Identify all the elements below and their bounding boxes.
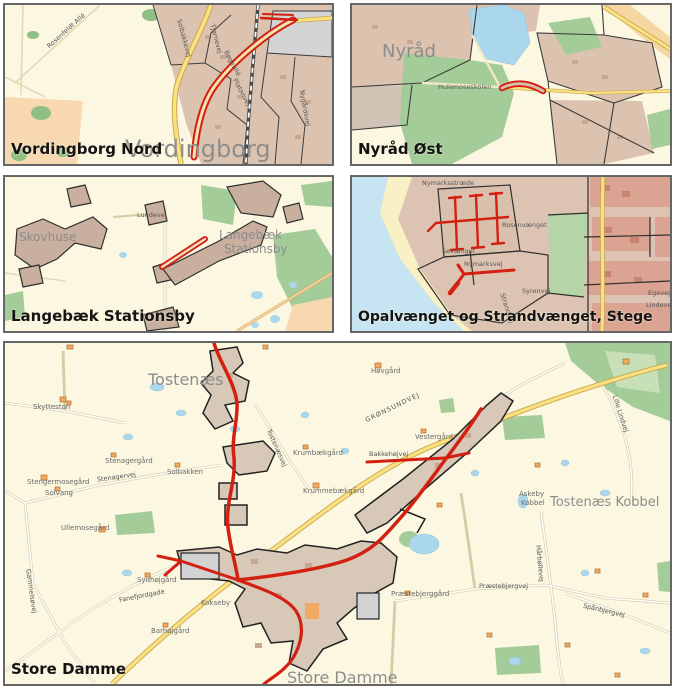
- street-label: Hulemoseskolen: [438, 83, 491, 91]
- street-label: Søvænget: [442, 247, 476, 255]
- panel-title-store-damme: Store Damme: [11, 660, 126, 678]
- place-label-store-damme: Store Damme: [287, 668, 398, 684]
- street-label: Lundevej: [137, 211, 167, 219]
- panel-title-stege: Opalvænget og Strandvænget, Stege: [358, 309, 653, 325]
- place-label: Ullemosegård: [61, 523, 109, 532]
- place-label-tostenaes: Tostenæs: [147, 370, 223, 389]
- place-label: Solbakken: [167, 468, 203, 476]
- place-label: Sydhøjgård: [137, 575, 177, 584]
- street-label: Syrenvej: [522, 287, 550, 295]
- place-label: Kobbel: [521, 499, 545, 507]
- map-stege: Nymarksstræde Søvænget Nymarksvej Rosenv…: [352, 177, 670, 331]
- panel-title-langebaek: Langebæk Stationsby: [11, 307, 195, 325]
- place-label: Askeby: [519, 490, 544, 498]
- place-label: Stenagergård: [105, 456, 153, 465]
- place-label: Stengermosegård: [27, 477, 89, 486]
- place-label: Barhøjgård: [151, 626, 189, 635]
- park: [548, 213, 588, 297]
- place-label-stationsby: Stationsby: [224, 242, 288, 256]
- place-label-tostenaes-kobbel: Tostenæs Kobbel: [549, 495, 659, 510]
- place-label: Krumbækgård: [293, 448, 343, 457]
- street-label: Lindevej: [646, 301, 670, 309]
- map-store-damme: Tostenæs Tostenæs Kobbel Store Damme Sky…: [5, 343, 670, 684]
- residential-area: [550, 100, 654, 164]
- main-roads: [602, 177, 603, 331]
- place-label-skovhuse: Skovhuse: [19, 230, 76, 244]
- road-label: Præstebjergvej: [479, 582, 528, 590]
- panel-nyraad-oest: Hulemoseskolen Nyråd Nyråd Øst: [350, 3, 672, 166]
- street-label: Egevej: [648, 289, 670, 297]
- place-label: Krummebækgård: [303, 486, 364, 495]
- place-label: Høvgård: [371, 366, 401, 375]
- panel-langebaek: Lundevej Skovhuse Langebæk Stationsby La…: [3, 175, 334, 333]
- panel-vordingborg-nord: Rosenfeldt Allé Solbakkevej Tjørnevej Bø…: [3, 3, 334, 166]
- place-label: Vestergård: [415, 432, 453, 441]
- gray-block: [357, 593, 379, 619]
- place-label: Præstebjerggård: [391, 589, 449, 598]
- map-report-canvas: Rosenfeldt Allé Solbakkevej Tjørnevej Bø…: [0, 0, 675, 690]
- street-label: Rosenvænget: [502, 221, 547, 229]
- city-label-nyraad: Nyråd: [382, 41, 436, 62]
- street-label: Nymarksstræde: [422, 179, 474, 187]
- place-label: Kokseby: [201, 599, 230, 607]
- panel-title-nyraad-oest: Nyråd Øst: [358, 140, 443, 158]
- road-label: Bakkehøjvej: [369, 450, 408, 458]
- street-label: Nymarksvej: [464, 260, 503, 268]
- panel-stege: Nymarksstræde Søvænget Nymarksvej Rosenv…: [350, 175, 672, 333]
- place-label: Skytteston: [33, 403, 70, 411]
- place-label-langebaek: Langebæk: [219, 228, 282, 242]
- place-label: Solvang: [45, 489, 73, 497]
- panel-title-vordingborg-nord: Vordingborg Nord: [11, 140, 162, 158]
- panel-store-damme: Tostenæs Tostenæs Kobbel Store Damme Sky…: [3, 341, 672, 686]
